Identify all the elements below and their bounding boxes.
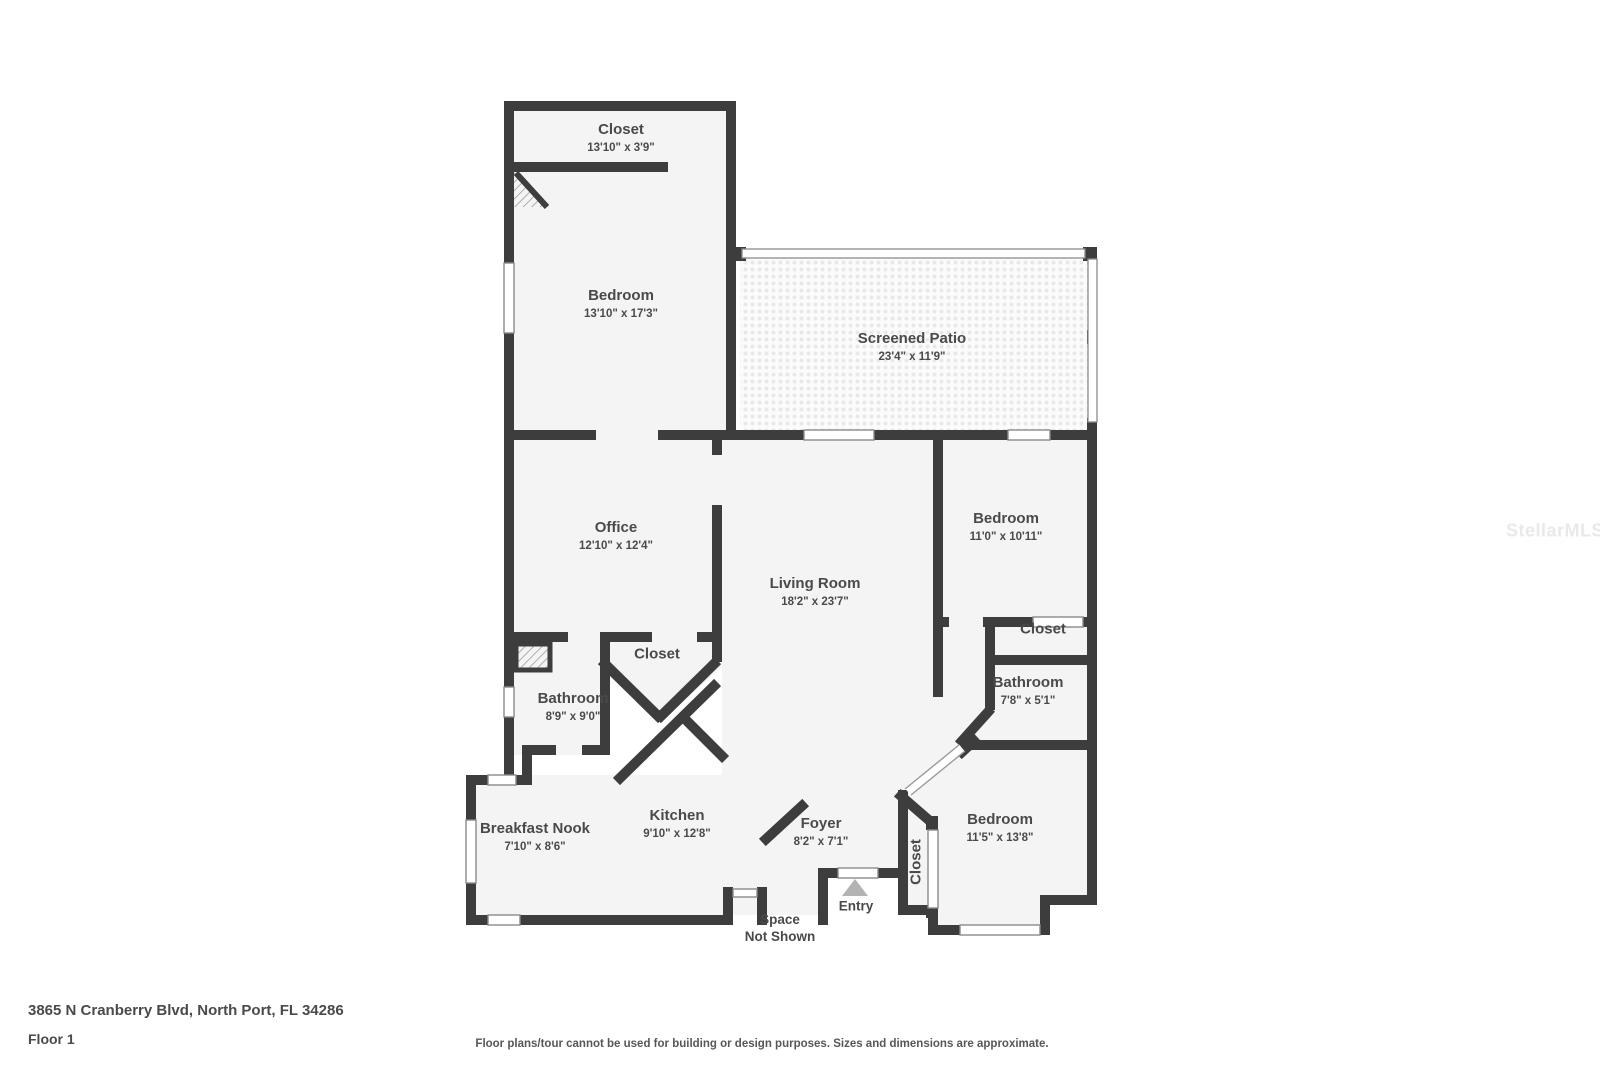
floor-number: Floor 1: [28, 1031, 75, 1047]
floor-areas: [466, 105, 1097, 935]
property-address: 3865 N Cranberry Blvd, North Port, FL 34…: [28, 1002, 344, 1019]
stellar-mls-watermark: StellarMLS: [1506, 521, 1600, 542]
fixture-hatch-box: [516, 644, 550, 670]
disclaimer-text: Floor plans/tour cannot be used for buil…: [475, 1038, 1048, 1050]
floor-plan-drawing: [0, 0, 1600, 1066]
screened-patio-floor: [740, 254, 1092, 436]
floor-plan-page: Closet13'10" x 3'9"Bedroom13'10" x 17'3"…: [0, 0, 1600, 1066]
entry-triangle-icon: [842, 879, 868, 896]
